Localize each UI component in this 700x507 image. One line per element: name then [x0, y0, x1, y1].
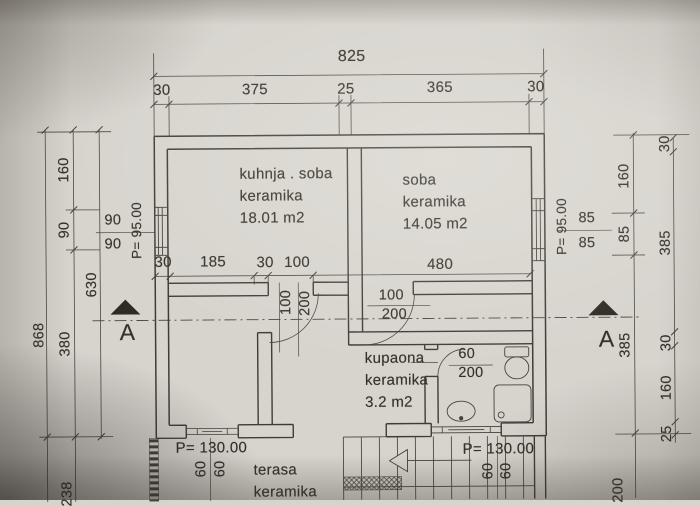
dim-top-0: 30	[153, 83, 170, 98]
window-symbol-right	[532, 199, 546, 261]
dim-left-chain-2: 380	[58, 331, 73, 356]
dim-right-chain-1: 85	[618, 226, 633, 243]
dim-right-outer-2: 30	[659, 334, 674, 351]
dim-top-1: 375	[242, 82, 268, 97]
dim-sill-right-1: 60	[499, 462, 514, 479]
dim-left-chain-0: 160	[57, 157, 72, 182]
room-bathroom-name: kupaona	[365, 347, 428, 369]
room-bathroom-finish: keramika	[365, 369, 428, 391]
section-marker-triangle-right	[588, 300, 618, 315]
dim-parapet-right-1: 85	[579, 236, 596, 251]
toilet-tank-icon	[505, 347, 529, 357]
section-label-left: A	[120, 321, 136, 344]
dim-mid-2: 30	[256, 255, 273, 270]
toilet-bowl-icon	[505, 357, 529, 379]
section-cut-line	[92, 317, 640, 321]
dim-door-bath-height: 200	[458, 366, 483, 381]
dimension-lines	[37, 48, 692, 503]
room-kitchen-name: kuhnja . soba	[239, 163, 332, 186]
room-label-terrace: terasa keramika	[253, 459, 317, 503]
dim-top-4: 30	[527, 79, 544, 94]
dim-parapet-left-1: 90	[105, 237, 122, 252]
hatched-step-band	[344, 477, 402, 490]
room-soba-area: 14.05 m2	[403, 213, 468, 235]
hatched-wall-strip	[149, 438, 158, 501]
exterior-walls	[154, 134, 546, 439]
dim-door-left-height: 200	[298, 291, 313, 316]
dim-left-subtotal: 630	[85, 272, 100, 297]
dim-parapet-right-0: 85	[578, 211, 595, 226]
dim-door-bath-width: 60	[458, 347, 475, 362]
dim-left-total: 868	[32, 323, 47, 348]
dim-door-left-width: 100	[279, 290, 294, 315]
leader-lines	[96, 229, 614, 502]
sink-drain-icon	[460, 417, 463, 420]
dim-right-outer-0: 30	[658, 135, 673, 152]
dim-sill-left-1: 60	[213, 460, 228, 477]
dim-right-chain-0: 160	[617, 163, 632, 188]
dim-left-chain-1: 90	[58, 222, 73, 239]
dim-right-outer-3: 160	[660, 375, 675, 400]
room-label-kitchen: kuhnja . soba keramika 18.01 m2	[239, 163, 333, 230]
level-terrace-left: P= 130.00	[176, 440, 248, 455]
dim-right-chain-3: 200	[611, 478, 626, 503]
room-kitchen-area: 18.01 m2	[240, 207, 333, 230]
level-main-left: P= 95.00	[130, 202, 144, 259]
sill-symbol-right	[431, 426, 501, 432]
shower-tray-icon	[494, 385, 531, 422]
dim-sill-left-0: 60	[194, 461, 209, 478]
dim-top-3: 365	[427, 80, 453, 95]
dim-top-2: 25	[337, 81, 354, 96]
floor-plan-photo: { "colors": { "paper": "#d7d4ce", "line"…	[0, 0, 700, 500]
room-bathroom-area: 3.2 m2	[365, 391, 428, 413]
room-terrace-name: terasa	[253, 459, 316, 481]
dim-sill-right-0: 60	[481, 463, 496, 480]
room-label-bathroom: kupaona keramika 3.2 m2	[365, 347, 429, 413]
level-main-right: P= 95.00	[555, 198, 569, 255]
sill-symbol-left	[186, 428, 238, 434]
section-label-right: A	[599, 328, 615, 351]
shower-drain-icon	[498, 412, 504, 418]
dim-mid-4: 480	[427, 257, 453, 272]
dim-top-total: 825	[338, 49, 366, 65]
dim-door-soba-height: 200	[382, 307, 407, 322]
section-marker-triangle-left	[110, 299, 140, 314]
dim-left-chain-3: 238	[60, 481, 75, 506]
dim-right-outer-1: 385	[659, 230, 674, 255]
dim-mid-0: 30	[154, 255, 171, 270]
dim-right-outer-4: 25	[660, 425, 675, 442]
dim-mid-1: 185	[200, 254, 226, 269]
dim-mid-3: 100	[284, 255, 310, 270]
room-kitchen-finish: keramika	[240, 185, 333, 208]
stair-direction-arrowhead	[389, 450, 407, 472]
dim-door-soba-width: 100	[379, 288, 404, 303]
room-soba-name: soba	[402, 169, 467, 191]
dim-parapet-left-0: 90	[104, 213, 121, 228]
window-symbol-left	[154, 207, 168, 255]
floor-plan-drawing: 825 30 375 25 365 30 30 185 30 100 480 9…	[0, 0, 700, 502]
room-soba-finish: keramika	[403, 191, 468, 213]
room-terrace-finish: keramika	[254, 481, 317, 503]
dim-right-chain-2: 385	[618, 332, 633, 357]
level-terrace-right: P= 130.00	[463, 441, 535, 456]
room-label-soba: soba keramika 14.05 m2	[402, 169, 467, 235]
